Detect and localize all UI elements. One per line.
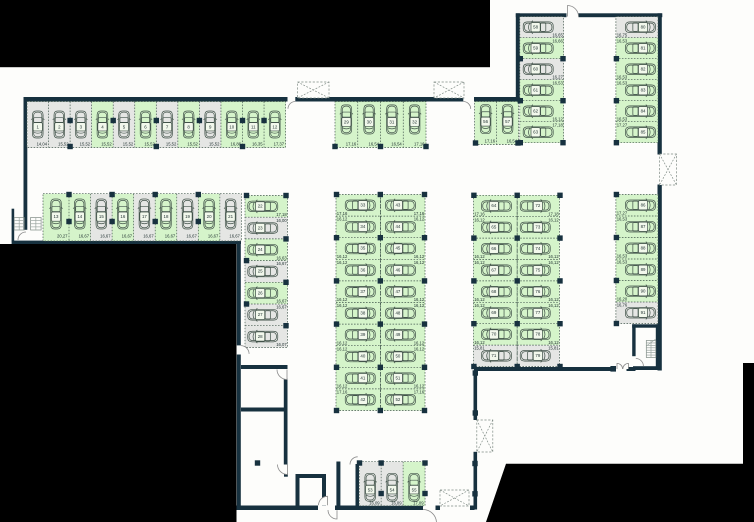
svg-text:16: 16 [120,214,125,219]
svg-text:44: 44 [395,224,400,229]
svg-text:16,53: 16,53 [617,80,628,85]
svg-text:16,12: 16,12 [548,254,559,259]
svg-text:17: 17 [142,214,147,219]
svg-text:16,53: 16,53 [617,74,628,79]
svg-text:15,81: 15,81 [474,346,485,351]
svg-text:52: 52 [395,397,400,402]
svg-text:16,53: 16,53 [552,80,563,85]
svg-text:12: 12 [272,125,277,130]
svg-text:89: 89 [641,267,646,272]
svg-text:50: 50 [395,354,400,359]
svg-text:82: 82 [641,66,646,71]
svg-text:17,18: 17,18 [552,122,563,127]
svg-text:16,12: 16,12 [548,297,559,302]
svg-text:15,81: 15,81 [548,346,559,351]
svg-text:15,52: 15,52 [123,141,134,146]
svg-text:17,27: 17,27 [617,211,628,216]
svg-text:16,54: 16,54 [391,141,402,146]
svg-text:85: 85 [641,129,646,134]
svg-text:11: 11 [251,125,256,130]
svg-text:66: 66 [491,246,496,251]
svg-text:28: 28 [258,334,263,339]
svg-text:16,12: 16,12 [474,340,485,345]
svg-text:16,12: 16,12 [337,346,348,351]
svg-text:73: 73 [535,225,540,230]
svg-text:16,67: 16,67 [276,261,287,266]
svg-text:74: 74 [535,246,540,251]
svg-text:49: 49 [395,332,400,337]
svg-text:87: 87 [641,224,646,229]
svg-text:57: 57 [505,119,510,124]
svg-text:38: 38 [360,311,365,316]
svg-text:88: 88 [641,245,646,250]
svg-text:46: 46 [395,267,400,272]
svg-text:19: 19 [185,214,190,219]
svg-text:16,12: 16,12 [337,303,348,308]
svg-text:16,12: 16,12 [548,340,559,345]
svg-text:16,12: 16,12 [337,384,348,389]
svg-text:31: 31 [389,120,394,125]
svg-text:47: 47 [395,289,400,294]
svg-text:61: 61 [533,87,538,92]
svg-text:13: 13 [54,214,59,219]
svg-text:30: 30 [367,120,372,125]
svg-text:16,75: 16,75 [617,32,628,37]
svg-text:16,12: 16,12 [548,260,559,265]
svg-text:79: 79 [535,353,540,358]
svg-text:72: 72 [535,203,540,208]
svg-text:16,12: 16,12 [414,254,425,259]
svg-text:42: 42 [360,397,365,402]
svg-text:15,52: 15,52 [187,141,198,146]
svg-text:16,12: 16,12 [474,260,485,265]
svg-text:16,53: 16,53 [617,116,628,121]
svg-text:16,12: 16,12 [548,303,559,308]
svg-text:81: 81 [641,45,646,50]
svg-text:25: 25 [258,269,263,274]
svg-text:65: 65 [491,225,496,230]
svg-text:78: 78 [535,332,540,337]
svg-text:63: 63 [533,129,538,134]
svg-text:41: 41 [360,375,365,380]
svg-text:15,52: 15,52 [101,141,112,146]
svg-text:16,76: 16,76 [617,303,628,308]
svg-text:54: 54 [390,487,395,492]
svg-text:16,12: 16,12 [337,254,348,259]
svg-text:36: 36 [360,267,365,272]
svg-text:20: 20 [207,214,212,219]
svg-text:16,12: 16,12 [414,303,425,308]
svg-text:83: 83 [641,87,646,92]
svg-text:16,53: 16,53 [617,260,628,265]
svg-text:27: 27 [258,312,263,317]
svg-text:17,18: 17,18 [276,212,287,217]
svg-text:24: 24 [258,247,263,252]
svg-text:16,12: 16,12 [337,297,348,302]
svg-text:16,63: 16,63 [276,255,287,260]
svg-text:16,12: 16,12 [474,217,485,222]
svg-text:16,12: 16,12 [414,384,425,389]
svg-text:16,12: 16,12 [552,116,563,121]
svg-text:16,12: 16,12 [337,260,348,265]
svg-text:16,67: 16,67 [276,305,287,310]
svg-text:23: 23 [258,225,263,230]
svg-text:17,16: 17,16 [414,390,425,395]
svg-text:16,53: 16,53 [617,254,628,259]
svg-text:16,09: 16,09 [391,500,402,505]
svg-text:16,12: 16,12 [474,303,485,308]
svg-text:70: 70 [491,332,496,337]
svg-text:91: 91 [641,310,646,315]
svg-text:16,67: 16,67 [229,234,240,239]
svg-text:48: 48 [395,311,400,316]
svg-text:16,00: 16,00 [276,218,287,223]
svg-text:69: 69 [491,310,496,315]
svg-text:71: 71 [491,353,496,358]
svg-text:16,65: 16,65 [552,32,563,37]
svg-text:16,67: 16,67 [276,299,287,304]
svg-text:16,67: 16,67 [122,234,133,239]
svg-text:15,52: 15,52 [166,141,177,146]
svg-text:16,53: 16,53 [617,38,628,43]
svg-text:53: 53 [368,487,373,492]
svg-text:39: 39 [360,332,365,337]
svg-text:15,52: 15,52 [80,141,91,146]
svg-text:20,27: 20,27 [57,234,68,239]
svg-text:16,12: 16,12 [414,260,425,265]
svg-text:16,35: 16,35 [252,141,263,146]
svg-text:17,37: 17,37 [274,141,285,146]
svg-text:77: 77 [535,310,540,315]
svg-text:17,16: 17,16 [485,138,496,143]
svg-text:10: 10 [229,125,234,130]
svg-text:84: 84 [641,108,646,113]
svg-text:90: 90 [641,288,646,293]
svg-text:16,53: 16,53 [617,217,628,222]
svg-text:16,12: 16,12 [548,217,559,222]
svg-text:16,12: 16,12 [337,340,348,345]
svg-text:16,27: 16,27 [552,74,563,79]
svg-text:80: 80 [641,24,646,29]
svg-text:26: 26 [258,290,263,295]
svg-text:51: 51 [395,375,400,380]
svg-text:75: 75 [535,267,540,272]
svg-text:14,04: 14,04 [37,141,48,146]
svg-text:16,07: 16,07 [276,342,287,347]
svg-text:15,52: 15,52 [209,141,220,146]
svg-text:16,67: 16,67 [208,234,219,239]
svg-text:37: 37 [360,289,365,294]
svg-text:68: 68 [491,289,496,294]
svg-text:16,67: 16,67 [143,234,154,239]
svg-text:40: 40 [360,354,365,359]
svg-text:16,20: 16,20 [617,297,628,302]
svg-text:15: 15 [99,214,104,219]
svg-text:16,67: 16,67 [186,234,197,239]
svg-text:17,18: 17,18 [548,211,559,216]
svg-text:64: 64 [491,203,496,208]
svg-text:17,16: 17,16 [346,141,357,146]
svg-text:17,16: 17,16 [337,211,348,216]
svg-text:58: 58 [533,24,538,29]
svg-text:16,67: 16,67 [79,234,90,239]
svg-text:60: 60 [533,66,538,71]
svg-text:16,67: 16,67 [100,234,111,239]
svg-text:67: 67 [491,267,496,272]
svg-text:76: 76 [535,289,540,294]
svg-text:16,12: 16,12 [414,217,425,222]
svg-text:17,27: 17,27 [617,122,628,127]
svg-text:16,12: 16,12 [474,297,485,302]
svg-text:14: 14 [77,214,82,219]
svg-text:16,12: 16,12 [414,297,425,302]
svg-text:86: 86 [641,202,646,207]
svg-text:35: 35 [360,246,365,251]
svg-text:62: 62 [533,108,538,113]
svg-text:17,16: 17,16 [414,211,425,216]
svg-text:55: 55 [412,487,417,492]
svg-text:56: 56 [483,119,488,124]
svg-text:21: 21 [228,214,233,219]
svg-text:34: 34 [360,224,365,229]
svg-text:17,16: 17,16 [337,390,348,395]
svg-text:16,12: 16,12 [474,254,485,259]
svg-text:22: 22 [258,204,263,209]
svg-text:18: 18 [164,214,169,219]
svg-text:16,12: 16,12 [337,217,348,222]
svg-text:29: 29 [344,120,349,125]
svg-text:16,09: 16,09 [369,500,380,505]
svg-text:17,16: 17,16 [474,211,485,216]
svg-text:59: 59 [533,45,538,50]
svg-text:16,67: 16,67 [165,234,176,239]
svg-text:32: 32 [412,120,417,125]
svg-text:16,66: 16,66 [552,38,563,43]
svg-text:16,12: 16,12 [414,346,425,351]
svg-text:43: 43 [395,203,400,208]
svg-text:17,09: 17,09 [413,500,424,505]
svg-text:33: 33 [360,203,365,208]
svg-text:45: 45 [395,246,400,251]
svg-text:16,12: 16,12 [414,340,425,345]
